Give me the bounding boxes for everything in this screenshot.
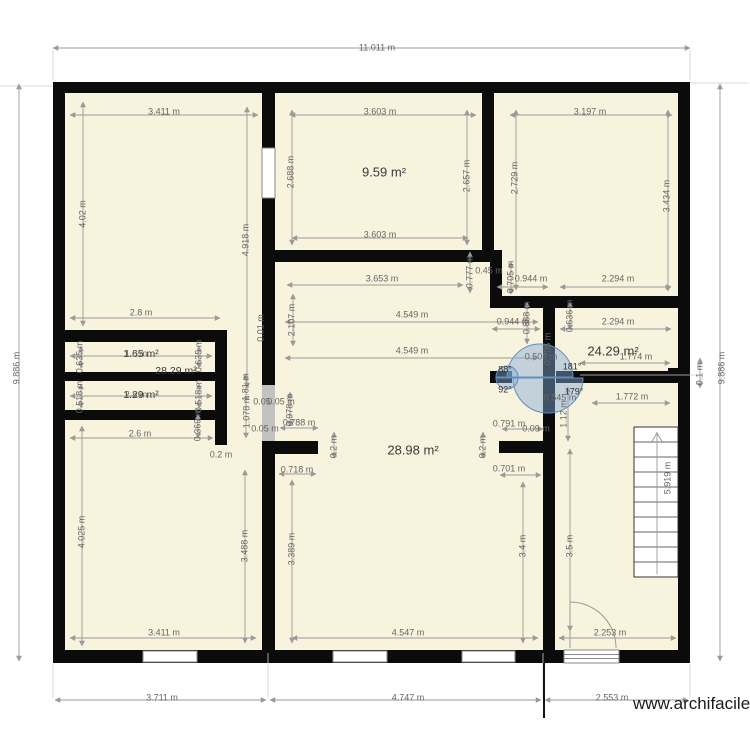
floor-plan-drawing xyxy=(0,0,750,750)
watermark: www.archifacile.fr xyxy=(633,694,750,714)
staircase xyxy=(634,427,678,577)
open-door-gap xyxy=(262,385,275,441)
floor-plan-canvas: 11.011 m9.886 m9.886 m3.711 m4.747 m2.55… xyxy=(0,0,750,750)
